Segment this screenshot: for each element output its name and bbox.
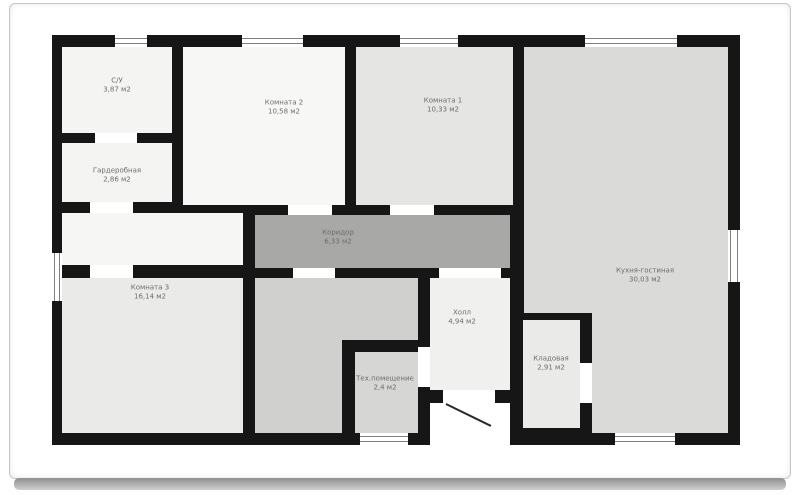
door-opening-su-wardrobe <box>95 133 137 143</box>
window-glass-lines <box>54 253 60 301</box>
window-glass-lines <box>585 38 677 44</box>
door-opening-corridor-hall <box>439 268 501 278</box>
room-floor-su <box>62 47 172 133</box>
room-floor-room1 <box>356 47 513 205</box>
room-floor-kitchen-main <box>524 47 728 313</box>
window-icon <box>728 230 740 282</box>
window-glass-lines <box>115 38 147 44</box>
room-floor-wardrobe <box>62 143 172 202</box>
room-floor-nook <box>62 213 243 265</box>
door-opening-room2-corridor <box>288 205 332 215</box>
door-opening-hall-tech <box>418 347 430 387</box>
door-opening-nook-room3 <box>90 265 133 278</box>
window-icon <box>585 35 677 47</box>
door-opening-room1-corridor <box>390 205 434 215</box>
window-glass-lines <box>730 230 738 282</box>
window-icon <box>52 253 62 301</box>
window-icon <box>115 35 147 47</box>
room-floor-pantry <box>523 320 580 428</box>
room-floor-tech <box>355 352 418 433</box>
window-icon <box>242 35 303 47</box>
window-icon <box>360 433 408 445</box>
window-icon <box>615 433 675 445</box>
window-glass-lines <box>242 38 303 44</box>
door-opening-wardrobe-nook <box>90 202 133 213</box>
room-floor-porch <box>430 403 510 445</box>
room-floor-room3 <box>62 278 243 433</box>
room-floor-hall <box>430 278 510 390</box>
door-opening-corridor-entry <box>293 268 335 278</box>
window-icon <box>400 35 458 47</box>
floor-plan: С/У3,87 м2Гардеробная2,86 м2Комната 210,… <box>0 0 800 495</box>
room-floor-entry-main <box>255 278 342 433</box>
room-floor-room2 <box>183 47 345 205</box>
door-opening-entrance <box>443 390 495 403</box>
window-glass-lines <box>615 436 675 442</box>
room-floor-entry-arm <box>342 278 418 340</box>
window-glass-lines <box>400 38 458 44</box>
room-floor-kitchen-ext <box>592 313 728 433</box>
window-glass-lines <box>360 436 408 442</box>
room-floor-corridor <box>255 215 510 268</box>
door-opening-pantry-kitchen <box>580 363 592 403</box>
